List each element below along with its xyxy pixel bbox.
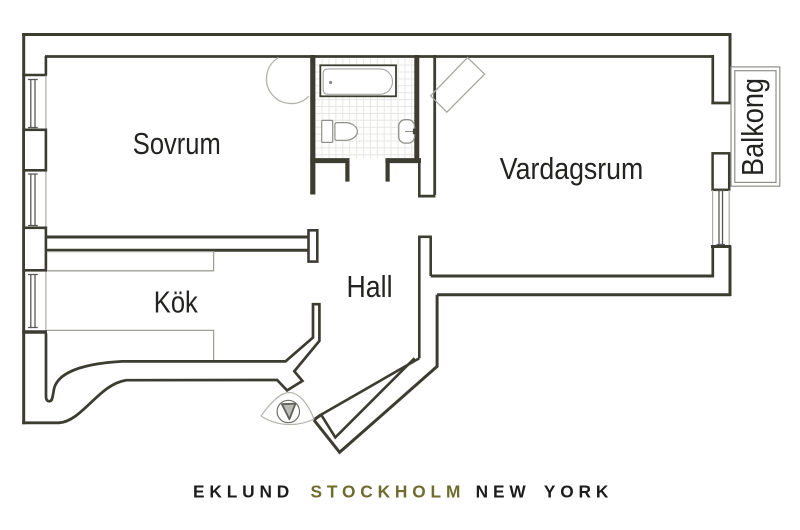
svg-text:Sovrum: Sovrum xyxy=(133,126,221,161)
svg-text:Balkong: Balkong xyxy=(735,78,770,176)
svg-text:Kök: Kök xyxy=(154,284,198,319)
svg-text:EKLUNDSTOCKHOLMNEWYORK: EKLUNDSTOCKHOLMNEWYORK xyxy=(193,482,613,502)
svg-text:Hall: Hall xyxy=(347,269,393,304)
svg-text:Vardagsrum: Vardagsrum xyxy=(500,151,644,186)
